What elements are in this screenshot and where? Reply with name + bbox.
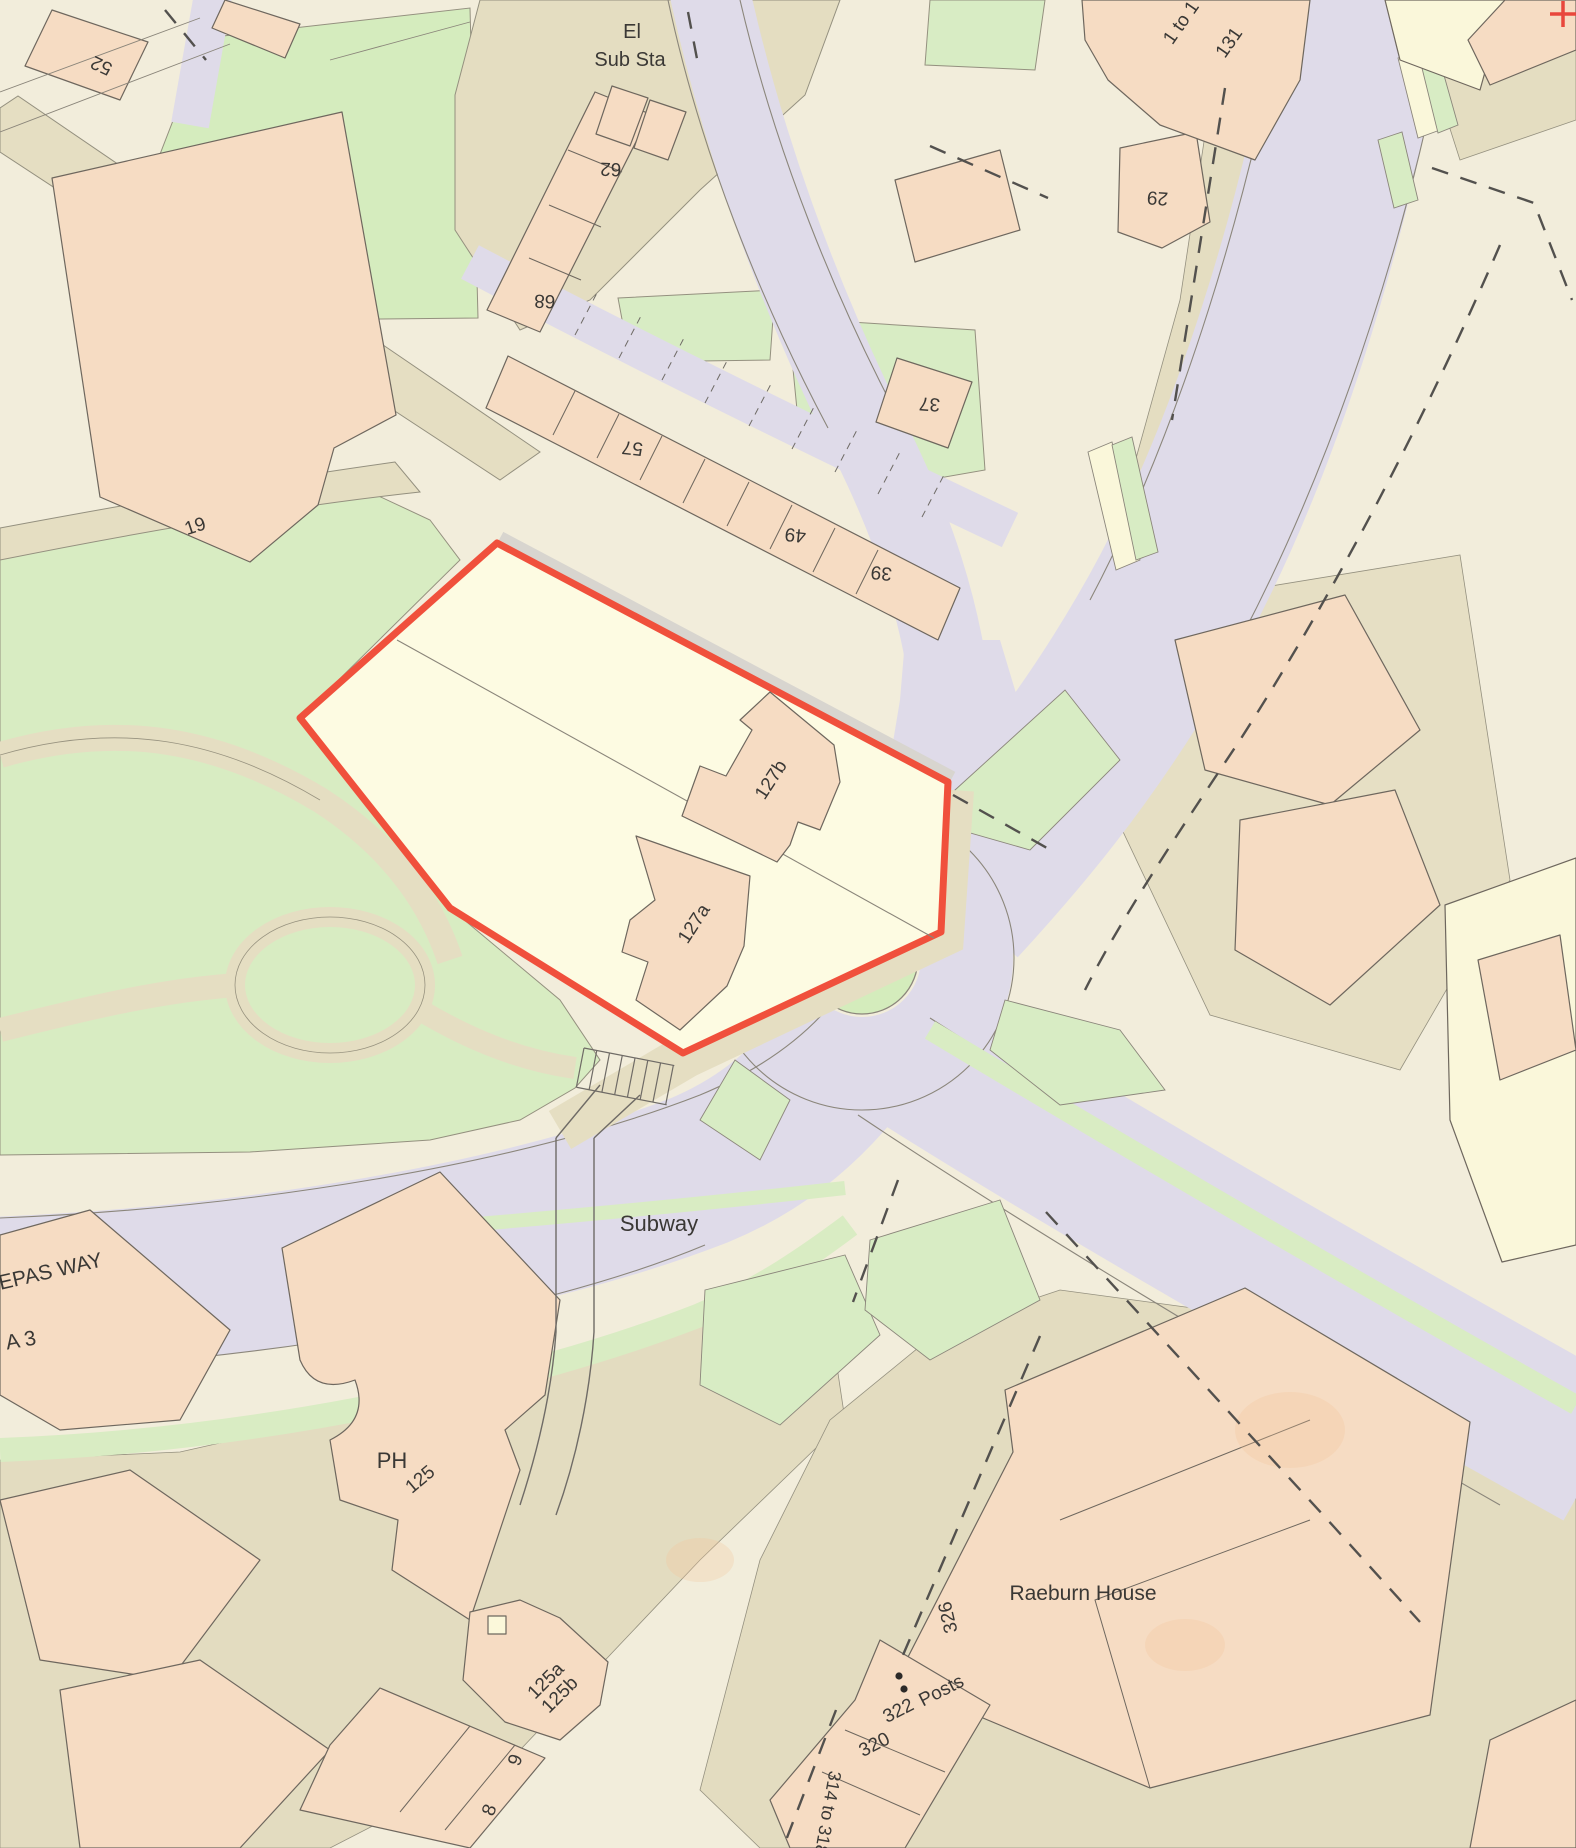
- label-subway: Subway: [620, 1211, 698, 1236]
- label-house-29: 29: [1146, 186, 1169, 208]
- label-el-sub-sta-2: Sub Sta: [594, 49, 666, 71]
- label-house-68: 68: [534, 290, 556, 312]
- label-house-49: 49: [784, 523, 807, 546]
- label-house-57: 57: [621, 436, 644, 459]
- map-canvas: 52 El Sub Sta 62 68 57 49 39 37 29 1 to …: [0, 0, 1576, 1848]
- label-house-39: 39: [870, 561, 893, 584]
- label-el-sub-sta-1: El: [623, 21, 641, 43]
- label-ph: PH: [377, 1448, 408, 1473]
- scanned-map-page: 52 El Sub Sta 62 68 57 49 39 37 29 1 to …: [0, 0, 1576, 1848]
- label-house-37: 37: [918, 392, 941, 414]
- label-house-62: 62: [600, 158, 622, 180]
- label-raeburn-house: Raeburn House: [1009, 1582, 1156, 1605]
